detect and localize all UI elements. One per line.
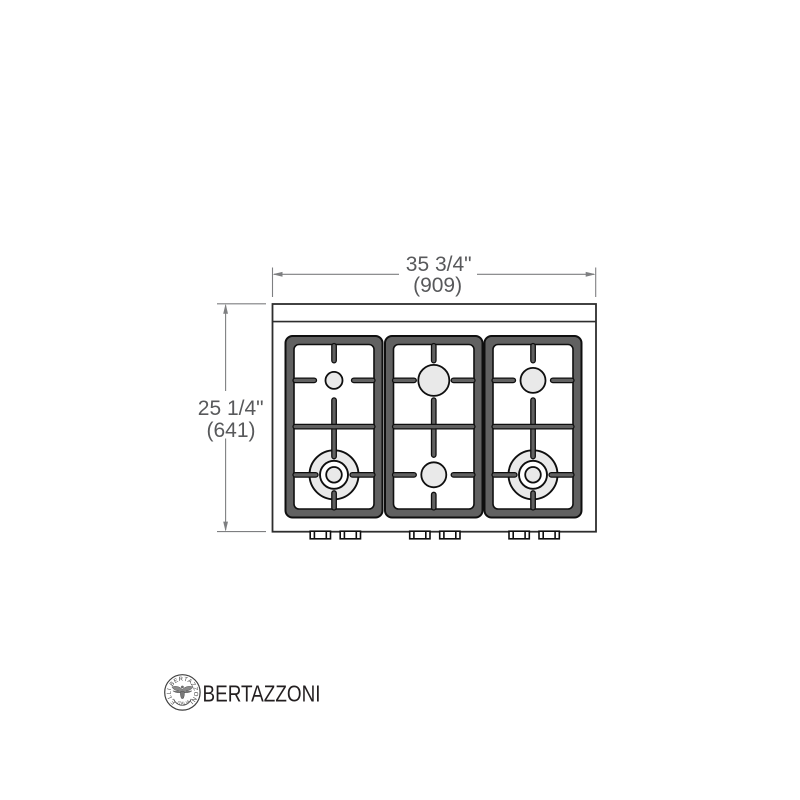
svg-text:25 1/4": 25 1/4" xyxy=(198,397,264,420)
svg-text:BERTAZZONI: BERTAZZONI xyxy=(203,681,321,707)
svg-text:(909): (909) xyxy=(413,274,462,297)
svg-text:35 3/4": 35 3/4" xyxy=(406,253,472,276)
svg-text:(641): (641) xyxy=(206,419,255,442)
